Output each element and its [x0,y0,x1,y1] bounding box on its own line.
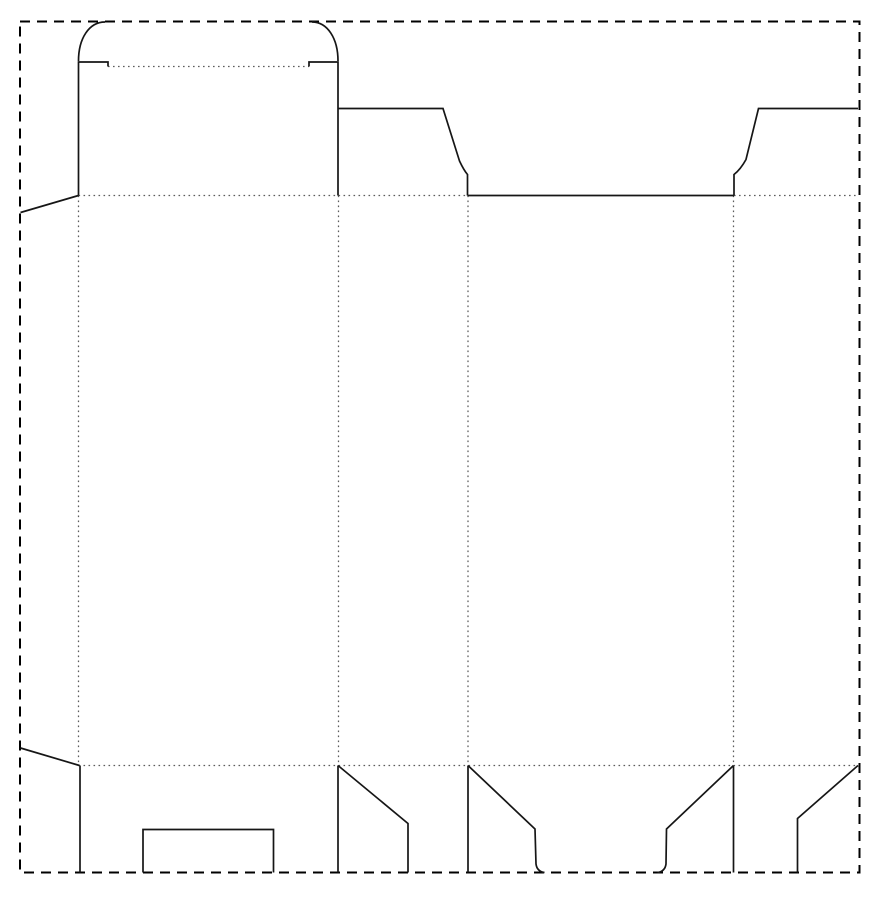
bottom-c-right-cut [658,766,734,873]
glue-flap-bottom-cut [21,748,80,766]
dust-flap-right-cut [734,109,858,196]
dieline-svg [0,0,880,900]
dieline-canvas [0,0,880,900]
bottom-b-diagonal-cut [338,766,408,873]
bottom-a-notch-cut [143,830,274,873]
bottom-d-diagonal-cut [798,766,859,873]
dust-flap-left-cut [338,109,468,196]
lid-right-shoulder-edge [309,62,338,196]
glue-flap-top-cut [21,196,79,213]
lid-right-arc [312,22,338,61]
bottom-c-left-cut [468,766,545,873]
lid-left-shoulder-edge [79,62,109,196]
lid-left-arc [79,22,106,61]
